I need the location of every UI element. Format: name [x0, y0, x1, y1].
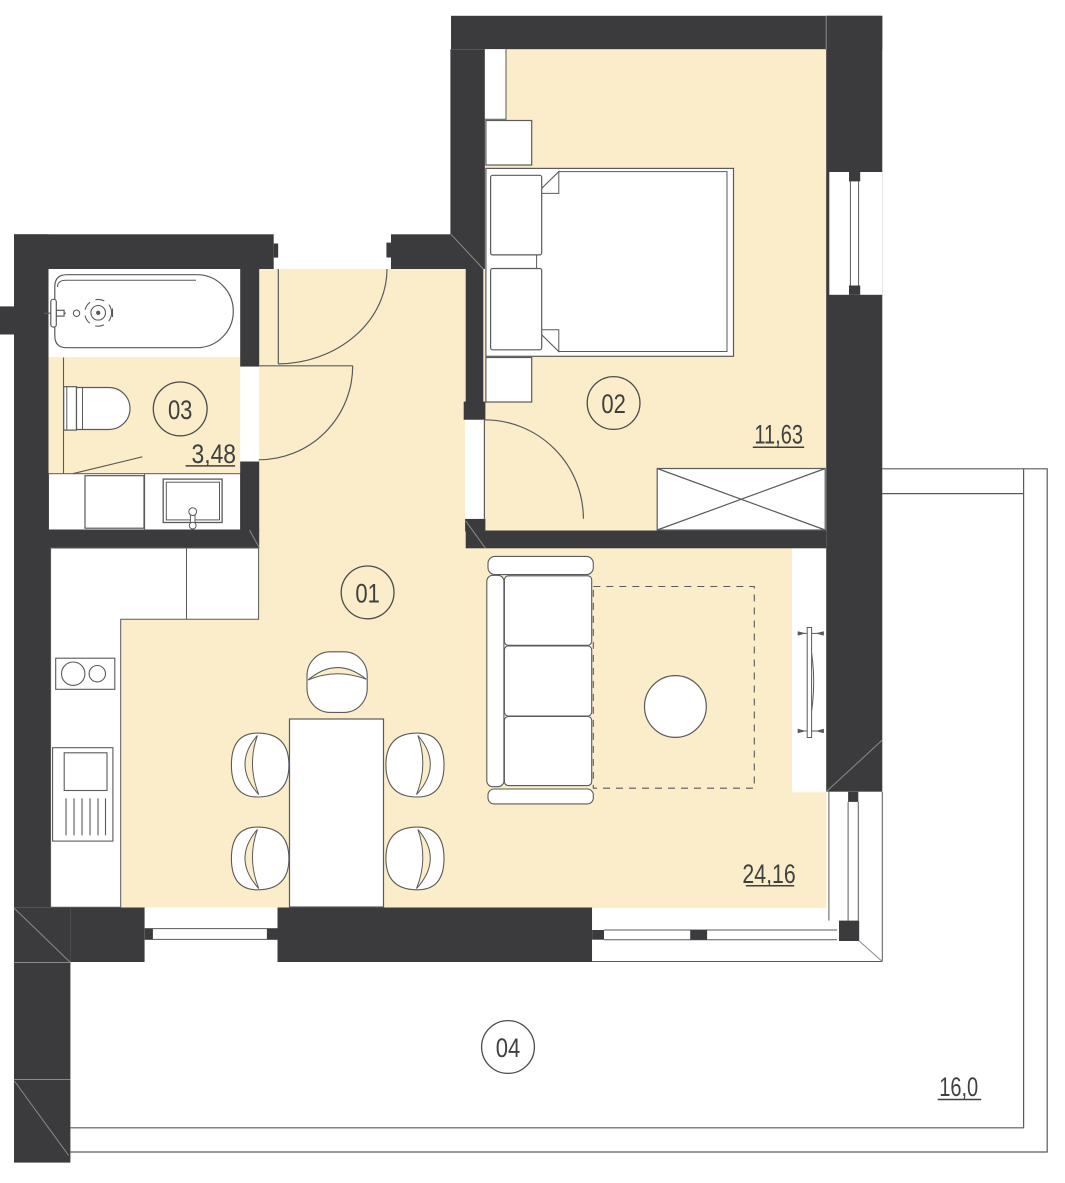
svg-text:3,48: 3,48 [192, 439, 237, 469]
svg-text:11,63: 11,63 [754, 420, 803, 450]
svg-text:01: 01 [355, 579, 380, 609]
svg-text:16,0: 16,0 [939, 1072, 978, 1102]
svg-text:04: 04 [496, 1033, 521, 1063]
svg-text:03: 03 [168, 395, 193, 425]
svg-text:24,16: 24,16 [742, 859, 795, 889]
svg-text:02: 02 [601, 389, 626, 419]
